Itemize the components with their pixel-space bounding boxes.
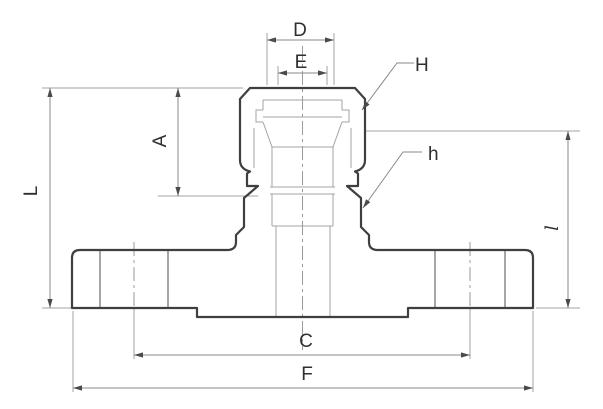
dim-label-F: F [301,364,313,385]
dim-label-H: H [415,55,429,76]
center-lines [134,46,470,350]
dim-label-E: E [295,52,308,73]
dim-label-D: D [293,20,307,41]
dim-label-l: l [542,225,563,231]
dim-label-A: A [150,134,171,147]
dim-label-L: L [21,186,42,197]
dim-label-C: C [299,331,313,352]
technical-drawing: D E H h A L l C F [0,0,603,409]
dimension-labels: D E H h A L l C F [21,20,563,385]
dim-label-h: h [428,144,439,165]
drawing-canvas: D E H h A L l C F [0,0,603,409]
